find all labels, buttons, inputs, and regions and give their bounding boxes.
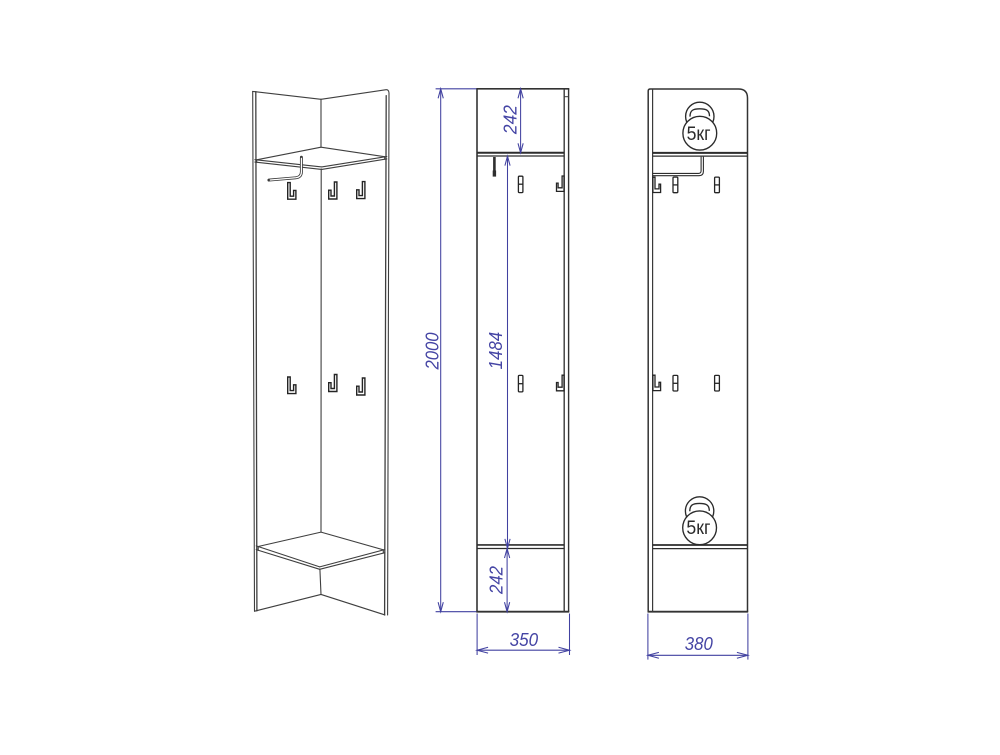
svg-text:380: 380 bbox=[685, 633, 714, 654]
svg-text:2000: 2000 bbox=[422, 332, 443, 371]
svg-text:5кг: 5кг bbox=[687, 124, 711, 145]
svg-text:1484: 1484 bbox=[485, 332, 506, 370]
svg-text:350: 350 bbox=[510, 629, 539, 650]
svg-text:5кг: 5кг bbox=[686, 518, 710, 539]
svg-text:242: 242 bbox=[486, 565, 507, 595]
svg-text:242: 242 bbox=[499, 104, 520, 135]
